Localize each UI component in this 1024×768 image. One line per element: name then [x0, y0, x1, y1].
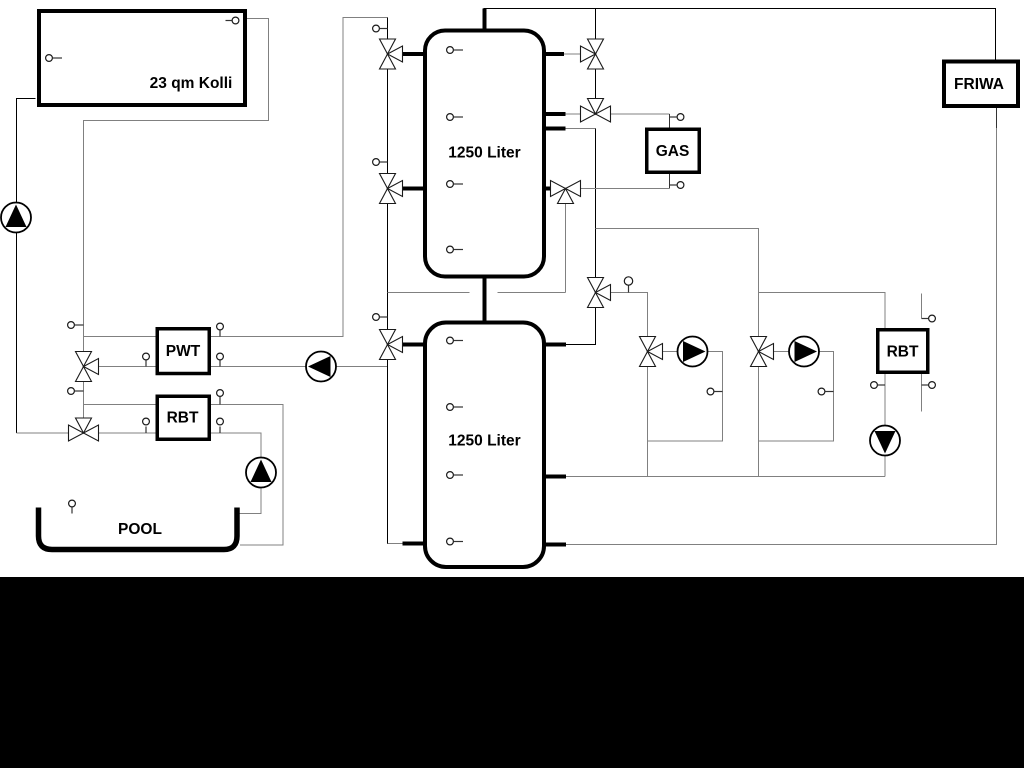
svg-text:1250 Liter: 1250 Liter: [448, 145, 520, 162]
svg-text:23 qm Kolli: 23 qm Kolli: [150, 75, 233, 92]
svg-text:RBT: RBT: [167, 410, 199, 427]
svg-text:RBT: RBT: [887, 344, 919, 361]
svg-text:1250 Liter: 1250 Liter: [448, 433, 520, 450]
svg-text:GAS: GAS: [656, 143, 690, 160]
svg-text:POOL: POOL: [118, 521, 162, 538]
svg-text:FRIWA: FRIWA: [954, 76, 1004, 93]
svg-text:PWT: PWT: [166, 343, 201, 360]
